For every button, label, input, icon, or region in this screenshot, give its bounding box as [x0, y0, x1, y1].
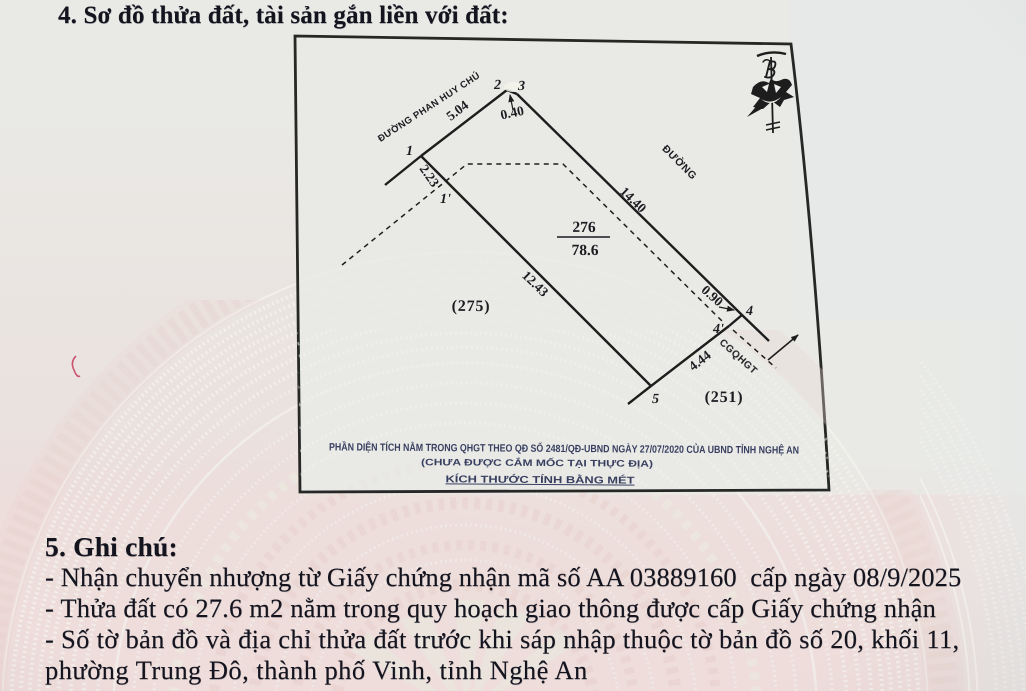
svg-text:(CHƯA ĐƯỢC CẮM MỐC TẠI THỰC ĐỊ: (CHƯA ĐƯỢC CẮM MỐC TẠI THỰC ĐỊA) — [421, 456, 653, 469]
svg-text:(275): (275) — [452, 298, 491, 315]
svg-text:1: 1 — [406, 144, 413, 159]
svg-text:5: 5 — [652, 392, 659, 407]
svg-text:2: 2 — [493, 78, 501, 93]
svg-text:78.6: 78.6 — [571, 242, 598, 259]
svg-text:276: 276 — [572, 219, 596, 236]
svg-text:3: 3 — [517, 79, 525, 94]
svg-text:(251): (251) — [705, 389, 744, 406]
svg-text:4': 4' — [712, 322, 724, 337]
svg-text:KÍCH THƯỚC TÍNH BẰNG MÉT: KÍCH THƯỚC TÍNH BẰNG MÉT — [445, 473, 634, 486]
svg-text:4: 4 — [745, 304, 753, 319]
svg-text:1': 1' — [440, 192, 451, 207]
